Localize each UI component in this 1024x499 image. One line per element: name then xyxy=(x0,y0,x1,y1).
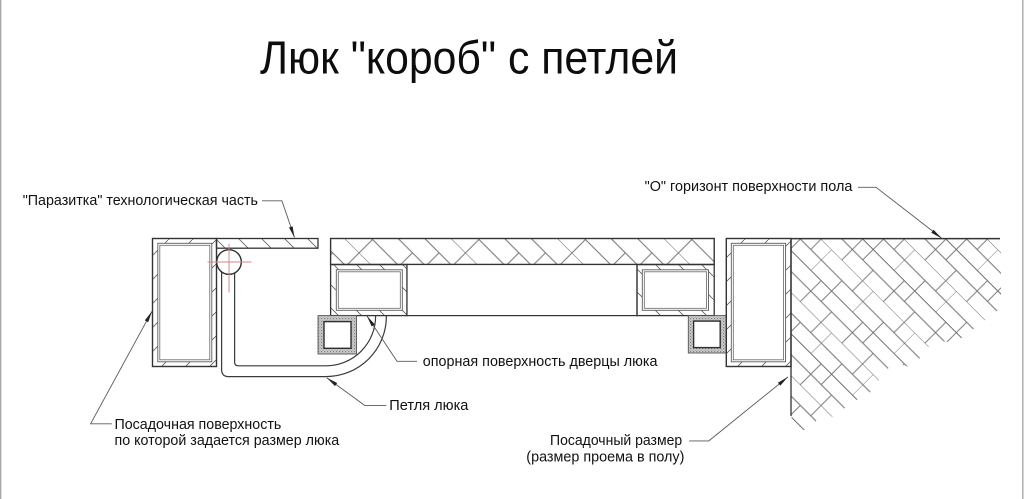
svg-text:Посадочная поверхность: Посадочная поверхность xyxy=(115,417,282,433)
svg-text:Петля люка: Петля люка xyxy=(389,398,469,414)
svg-text:опорная поверхность дверцы люк: опорная поверхность дверцы люка xyxy=(423,354,659,370)
svg-text:по которой задается размер люк: по которой задается размер люка xyxy=(115,433,341,449)
svg-text:(размер проема в полу): (размер проема в полу) xyxy=(526,449,684,465)
svg-text:Люк "короб" с петлей: Люк "короб" с петлей xyxy=(260,32,678,84)
svg-text:"Паразитка" технологическая ча: "Паразитка" технологическая часть xyxy=(23,193,258,209)
svg-text:Посадочный размер: Посадочный размер xyxy=(550,433,682,449)
svg-text:"О" горизонт поверхности пола: "О" горизонт поверхности пола xyxy=(645,179,854,195)
